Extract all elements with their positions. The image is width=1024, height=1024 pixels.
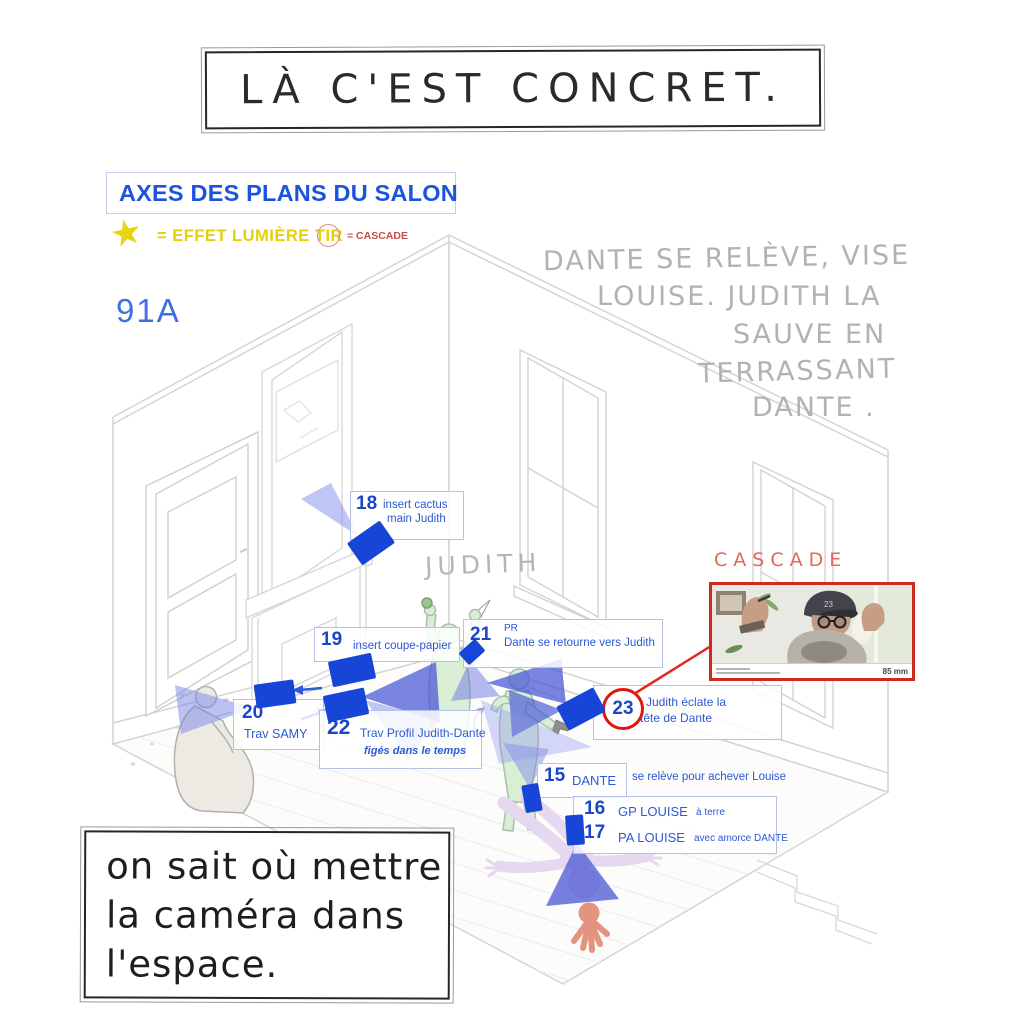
shot-name: DANTE — [572, 773, 616, 788]
caption-text-bars — [716, 668, 780, 674]
bottom-note-line: l'espace. — [106, 940, 448, 990]
cascade-photo: 23 85 mm — [709, 582, 915, 681]
shot-box-23: 23 Judith éclate la tête de Dante — [593, 685, 782, 740]
shot-name: PA LOUISE — [618, 830, 685, 845]
handwritten-note-line: TERRASSANT — [698, 353, 897, 389]
shot-label: Trav SAMY — [244, 727, 307, 741]
shot-number: 17 — [584, 822, 605, 844]
shot-number: 16 — [584, 798, 605, 820]
shot-box-15: 15 DANTE — [537, 763, 627, 798]
legend-star-label: = EFFET LUMIÈRE TIR — [157, 227, 343, 246]
handwritten-note-line: DANTE . — [752, 392, 876, 423]
shot-box-16-17: 16 GP LOUISE à terre 17 PA LOUISE avec a… — [573, 796, 777, 854]
handwritten-note-line: LOUISE. JUDITH LA — [597, 281, 881, 312]
header-box: AXES DES PLANS DU SALON — [106, 172, 456, 214]
star-icon: ★ — [106, 209, 146, 257]
door — [146, 432, 258, 716]
handwritten-note-line: DANTE SE RELÈVE, VISE — [543, 240, 911, 277]
shot-box-19: 19 insert coupe-papier — [314, 627, 460, 662]
stairs-sketch — [757, 860, 877, 944]
shot-label: tête de Dante — [640, 711, 712, 725]
page-title: LÀ C'EST CONCRET. — [240, 65, 786, 113]
cascade-title: CASCADE — [714, 549, 847, 571]
shot-name: GP LOUISE — [618, 804, 688, 819]
handwritten-note-line: SAUVE EN — [733, 319, 886, 350]
shot-label: Judith éclate la — [646, 695, 726, 709]
shot-label: Dante se retourne vers Judith — [504, 637, 655, 649]
window-1 — [520, 350, 606, 627]
storyboard-page: LÀ C'EST CONCRET. AXES DES PLANS DU SALO… — [0, 0, 1024, 1024]
bottom-note-box: on sait où mettre la caméra dans l'espac… — [84, 830, 451, 999]
shot-number: 23 — [612, 698, 633, 720]
photo-image: 23 — [712, 585, 912, 663]
shot-15-description: se relève pour achever Louise — [632, 771, 786, 783]
cap-number: 23 — [824, 600, 833, 609]
shot-box-21: 21 PR Dante se retourne vers Judith — [463, 619, 663, 668]
shot-sub-label: figés dans le temps — [364, 745, 466, 757]
shot-label: insert coupe-papier — [353, 640, 451, 652]
shot-number: 20 — [242, 702, 263, 724]
red-hand — [574, 903, 607, 950]
shot-number: 22 — [327, 716, 350, 740]
cone-shot23 — [509, 690, 562, 737]
cascade-circle-marker: 23 — [602, 688, 644, 730]
shot-box-18: 18 insert cactus main Judith — [350, 491, 464, 540]
shot-label: main Judith — [387, 513, 446, 525]
gun-icon — [553, 720, 570, 734]
photo-caption-strip: 85 mm — [712, 663, 912, 678]
scene-number: 91A — [116, 292, 181, 330]
diagram-title: AXES DES PLANS DU SALON — [119, 180, 458, 207]
shot-label: Trav Profil Judith-Dante — [360, 726, 486, 740]
bottom-note-line: on sait où mettre — [106, 842, 448, 892]
title-box: LÀ C'EST CONCRET. — [205, 49, 821, 130]
figure-dante — [491, 669, 570, 831]
shot-number: 18 — [356, 493, 377, 515]
focal-length-label: 85 mm — [883, 667, 908, 676]
shot-number: 19 — [321, 629, 342, 651]
shot-number: 21 — [470, 624, 491, 646]
bottom-note-line: la caméra dans — [106, 891, 448, 941]
shot-box-20: 20 Trav SAMY — [233, 699, 324, 750]
legend-cascade-label: = CASCADE — [347, 230, 408, 242]
shot-sub-label: à terre — [696, 807, 725, 818]
shot-box-22: 22 Trav Profil Judith-Dante figés dans l… — [319, 710, 482, 769]
shot-number: 15 — [544, 765, 565, 787]
cone-wide-light — [481, 700, 592, 764]
judith-floor-label: JUDITH — [425, 548, 542, 581]
cascade-circle-icon — [317, 224, 340, 247]
floor-debris — [131, 686, 243, 766]
shot-prefix: PR — [504, 623, 518, 634]
shot-label: insert cactus — [383, 499, 448, 511]
arrow-left-icon — [292, 685, 303, 695]
shot-sub-label: avec amorce DANTE — [694, 833, 788, 844]
